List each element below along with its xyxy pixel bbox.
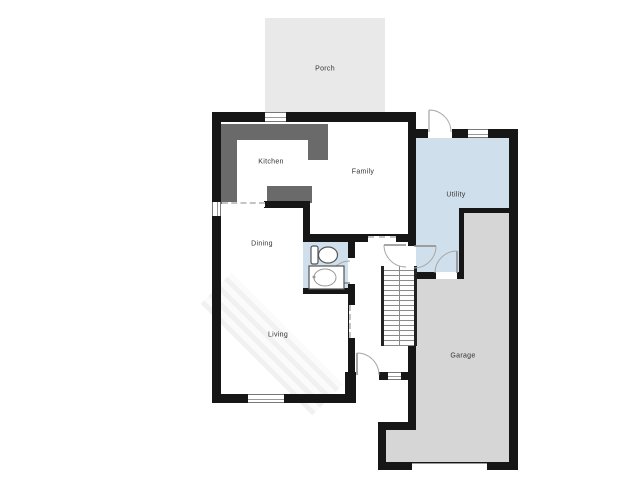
room-label-utility: Utility [446,192,465,199]
utility-exterior-door-swing [429,110,451,132]
floor-plan: Porch Kitchen Family Utility Dining Livi… [0,0,640,480]
room-label-garage: Garage [450,353,475,360]
front-door-swing [357,353,379,375]
room-label-living: Living [268,332,288,339]
room-label-family: Family [352,169,374,176]
room-label-porch: Porch [315,66,335,73]
toilet-icon [311,246,338,264]
utility-garage-door-swing [435,251,457,273]
room-label-kitchen: Kitchen [258,159,283,166]
sink-icon [309,266,344,289]
utility-door-swing [414,246,436,268]
stair-door-swing [384,245,406,267]
room-label-dining: Dining [251,241,273,248]
